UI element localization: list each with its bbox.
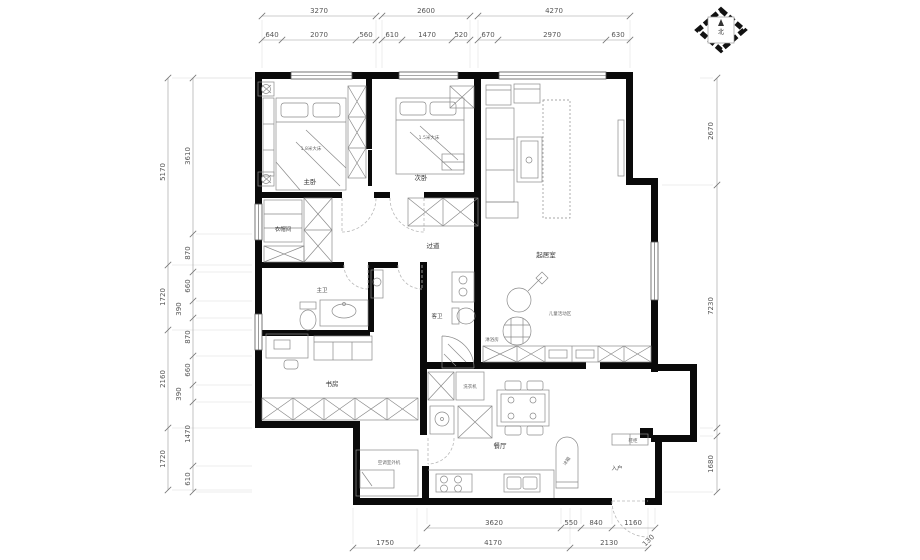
dim-bottom-detail-1: 3620 bbox=[485, 519, 503, 527]
door-master-bath bbox=[344, 265, 368, 289]
floor-plan-canvas: 3270 2600 4270 640 2070 560 610 1470 520… bbox=[0, 0, 920, 560]
kitchen-fixtures bbox=[356, 372, 648, 498]
door-master-bedroom bbox=[342, 198, 376, 232]
door-second-bedroom bbox=[390, 198, 424, 232]
guest-bath-fixtures bbox=[442, 272, 475, 368]
room-label-second-bedroom: 次卧 bbox=[415, 173, 429, 182]
room-label-dining-room: 餐厅 bbox=[494, 441, 508, 450]
floor-plan-drawing: 3270 2600 4270 640 2070 560 610 1470 520… bbox=[0, 0, 920, 560]
dim-top-detail-3: 560 bbox=[359, 31, 372, 39]
door-kitchen bbox=[428, 438, 454, 464]
dim-left-inner-5: 870 bbox=[184, 330, 192, 343]
door-guest-bath bbox=[398, 265, 422, 289]
room-label-hallway: 过道 bbox=[427, 241, 441, 250]
dim-bottom-overall-3: 2130 bbox=[600, 539, 618, 547]
label-shoe-cabinet: 鞋柜 bbox=[629, 437, 638, 444]
window-family-room bbox=[499, 72, 606, 79]
window-second-bedroom bbox=[399, 72, 458, 79]
dim-left-inner-3: 660 bbox=[184, 279, 192, 292]
dim-left-inner-2: 870 bbox=[184, 246, 192, 259]
window-right bbox=[651, 242, 658, 300]
dim-left-outer-2: 1720 bbox=[159, 288, 167, 306]
hallway-cabinet bbox=[408, 198, 478, 226]
dim-bottom-detail-5: 130 bbox=[641, 533, 656, 548]
study-furniture bbox=[262, 334, 418, 420]
north-compass-icon: 北 bbox=[698, 10, 744, 50]
dim-bottom-overall-2: 4170 bbox=[484, 539, 502, 547]
dim-top-detail-4: 610 bbox=[385, 31, 398, 39]
room-label-study: 书房 bbox=[326, 379, 339, 388]
dim-right-1: 2670 bbox=[707, 122, 715, 140]
dim-bottom-detail-4: 1160 bbox=[624, 519, 642, 527]
master-bedroom-furniture bbox=[258, 82, 366, 190]
dim-top-detail-7: 670 bbox=[481, 31, 494, 39]
dim-top-detail-6: 520 bbox=[454, 31, 467, 39]
label-washing-machine: 洗衣机 bbox=[463, 383, 477, 390]
dim-top-detail-5: 1470 bbox=[418, 31, 436, 39]
dim-left-inner-9: 610 bbox=[184, 472, 192, 485]
dim-top-overall-1: 3270 bbox=[310, 7, 328, 15]
room-label-kids-play-area: 儿童活动区 bbox=[549, 310, 572, 317]
dim-left-outer-3: 2160 bbox=[159, 370, 167, 388]
room-label-entry: 入户 bbox=[611, 464, 622, 472]
window-master-bedroom bbox=[291, 72, 352, 79]
dim-left-inner-6: 660 bbox=[184, 363, 192, 376]
label-ac-outdoor-unit: 空调室外机 bbox=[378, 459, 401, 466]
north-label: 北 bbox=[718, 28, 724, 36]
family-room-furniture bbox=[483, 84, 651, 362]
label-master-bed: 1.8米大床 bbox=[301, 145, 322, 152]
label-second-bed: 1.5米大床 bbox=[419, 134, 440, 141]
room-label-cloakroom: 衣帽间 bbox=[275, 225, 292, 233]
dimension-ticks bbox=[165, 13, 720, 551]
dim-right-3: 1680 bbox=[707, 455, 715, 473]
dim-left-outer-1: 5170 bbox=[159, 163, 167, 181]
dim-right-2: 7230 bbox=[707, 297, 715, 315]
room-label-master-bath: 主卫 bbox=[316, 286, 328, 294]
room-label-shower-room: 淋浴房 bbox=[485, 336, 499, 343]
second-bedroom-furniture bbox=[396, 86, 474, 174]
window-left-upper bbox=[255, 204, 262, 240]
dim-left-outer-4: 1720 bbox=[159, 450, 167, 468]
dim-bottom-detail-3: 840 bbox=[589, 519, 602, 527]
dim-bottom-overall-1: 1750 bbox=[376, 539, 394, 547]
label-fridge: 冰箱 bbox=[561, 455, 572, 467]
dim-top-overall-2: 2600 bbox=[417, 7, 435, 15]
room-label-family-room: 起居室 bbox=[536, 250, 556, 259]
dim-bottom-detail-2: 550 bbox=[564, 519, 577, 527]
dimension-lines bbox=[168, 16, 717, 548]
window-left-lower bbox=[255, 314, 262, 350]
dim-top-detail-1: 640 bbox=[265, 31, 278, 39]
room-label-master-bedroom: 主卧 bbox=[304, 177, 318, 186]
dim-top-detail-2: 2070 bbox=[310, 31, 328, 39]
dim-left-inner-7: 390 bbox=[175, 387, 183, 400]
dim-top-overall-3: 4270 bbox=[545, 7, 563, 15]
dim-left-inner-1: 3610 bbox=[184, 147, 192, 165]
dim-top-detail-8: 2970 bbox=[543, 31, 561, 39]
room-label-guest-bath: 客卫 bbox=[431, 312, 443, 320]
dim-top-detail-9: 630 bbox=[611, 31, 624, 39]
dim-left-inner-8: 1470 bbox=[184, 425, 192, 443]
dim-left-inner-4: 390 bbox=[175, 302, 183, 315]
dining-furniture bbox=[497, 381, 578, 488]
